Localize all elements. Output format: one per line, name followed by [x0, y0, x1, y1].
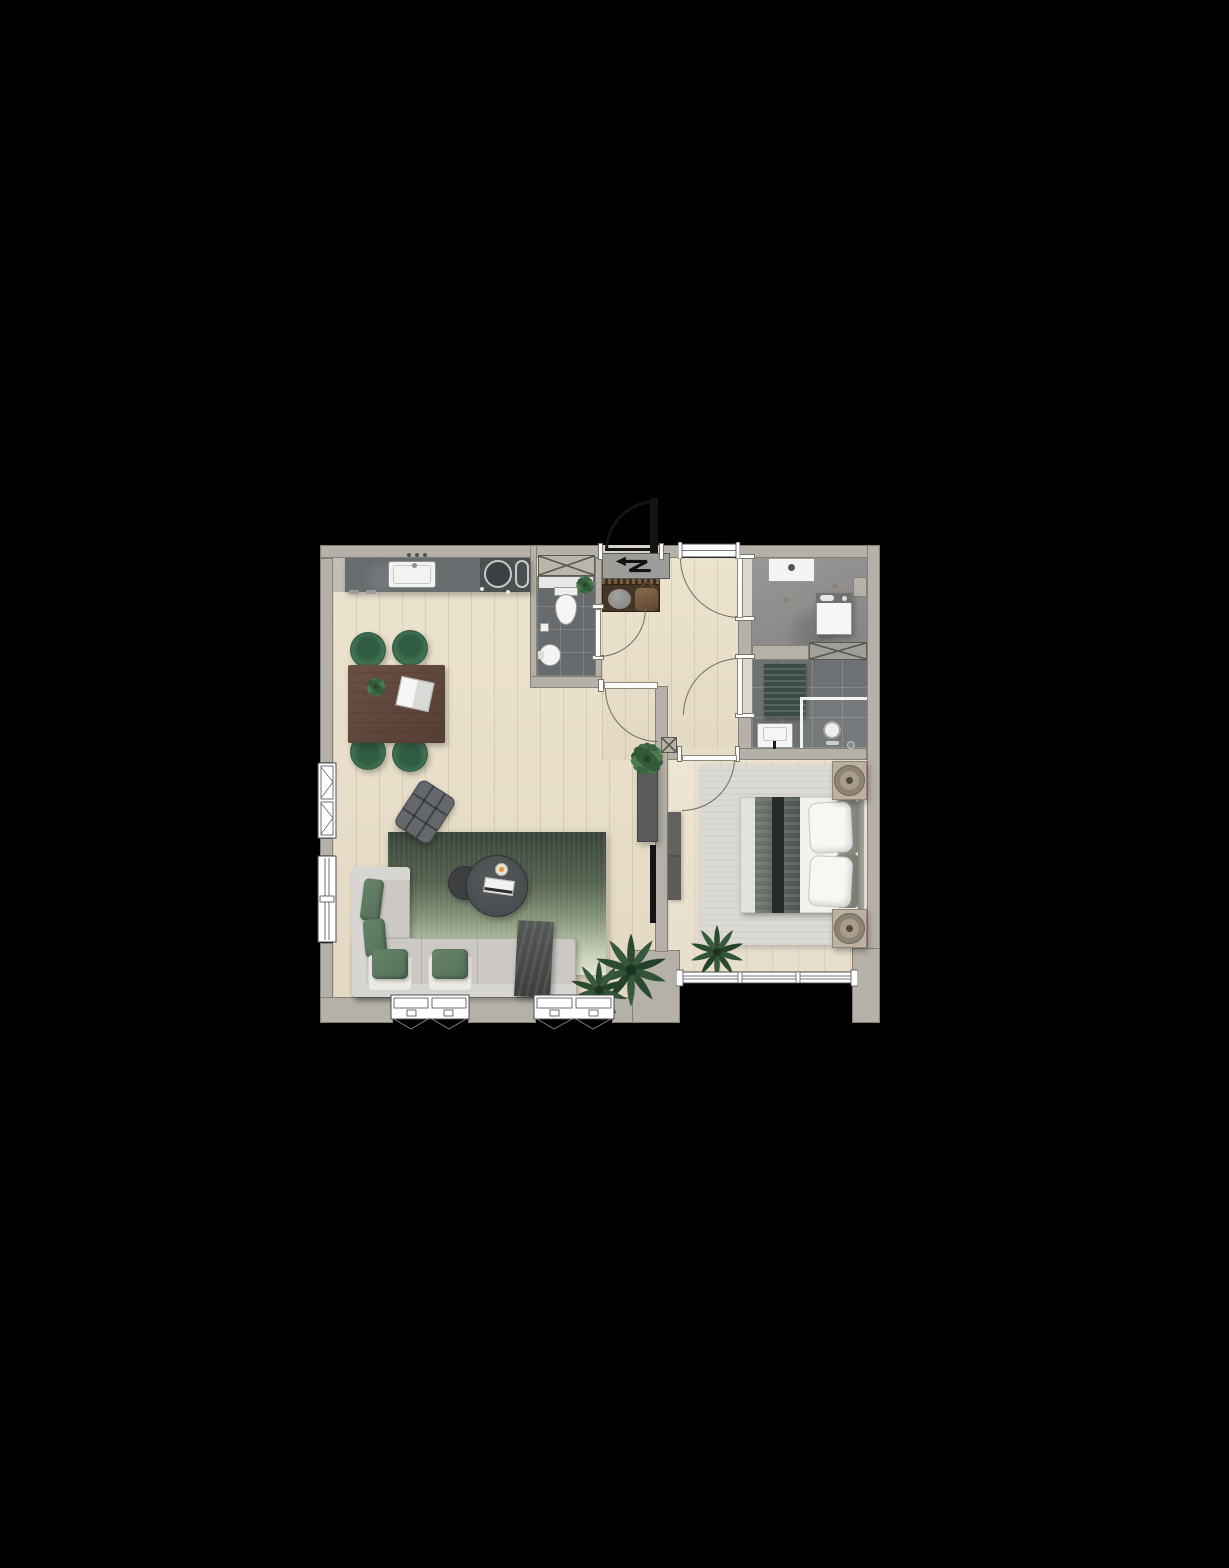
bedroom-dresser	[668, 812, 681, 900]
window-bottom-left	[390, 994, 470, 1030]
faucet-dot-3	[423, 553, 427, 557]
counter-handle-1	[349, 590, 359, 594]
green-pillow-seat-1	[372, 949, 408, 979]
shower-taps	[826, 741, 839, 745]
bathroom-sink-basin	[763, 727, 787, 741]
entrance-door-leaf	[650, 498, 658, 553]
faucet-dot-1	[407, 553, 411, 557]
wall-utility-notch	[853, 577, 867, 597]
window-bottom-right	[533, 994, 615, 1030]
window-hall-top	[678, 542, 740, 559]
entrance-door-swing-arc	[605, 500, 656, 551]
dining-chair-1	[350, 632, 386, 668]
toilet-door-leaf	[595, 609, 601, 657]
bed-pillow-1	[808, 801, 854, 854]
toilet-plant	[572, 572, 598, 598]
wall-utility-bathroom	[752, 645, 809, 660]
wall-bottom-a	[320, 997, 393, 1023]
table-lamp-top-center	[846, 777, 853, 784]
kitchen-sink-basin	[393, 565, 431, 584]
window-bedroom-south	[676, 969, 858, 987]
wall-hall-utility-a	[738, 618, 752, 658]
faucet-dot-2	[415, 553, 419, 557]
wall-top-right	[738, 545, 880, 558]
entrance-jamb-right	[659, 543, 664, 560]
tv	[650, 845, 656, 923]
wall-right	[867, 545, 880, 985]
toilet-paper-holder	[540, 623, 549, 632]
floor-plan	[320, 545, 880, 1023]
entrance-jamb-left	[598, 543, 603, 560]
toilet-basin-spout	[538, 651, 544, 659]
shaft-utility	[809, 642, 867, 660]
counter-handle-2	[366, 590, 376, 594]
window-left-fixed	[317, 855, 337, 943]
pouf	[608, 589, 631, 609]
canvas: { "scene": { "kind": "architectural floo…	[0, 0, 1229, 1568]
utility-sink-drain	[788, 564, 795, 571]
shower-head-icon	[823, 721, 841, 739]
counter-dot-2	[506, 590, 510, 594]
wall-left-upper	[320, 558, 333, 763]
hand-bag	[635, 588, 658, 611]
green-pillow-seat-2	[432, 949, 468, 979]
shower-drain	[847, 741, 855, 749]
tv-cabinet-plant	[623, 735, 671, 783]
counter-dot-1	[480, 587, 484, 591]
dining-chair-2	[392, 630, 428, 666]
hob-icon	[484, 560, 512, 588]
bed-pillow-2	[808, 855, 854, 908]
bed-duvet-fold	[740, 797, 756, 913]
living-hall-door-leaf	[604, 682, 658, 689]
dining-table-plant	[362, 673, 390, 701]
sofa-throw-blanket	[514, 920, 554, 998]
faucet-spout	[412, 563, 417, 568]
utility-door-leaf	[737, 558, 743, 618]
wall-toilet-left	[530, 545, 537, 688]
washing-machine-drawer	[820, 595, 834, 601]
hob-capsule-icon	[515, 560, 529, 588]
candle-flame	[499, 867, 504, 872]
bathroom-door-leaf	[737, 658, 743, 715]
wall-toilet-bottom	[530, 676, 602, 688]
bed-throw-core	[772, 797, 784, 913]
table-lamp-bottom-center	[846, 925, 853, 932]
sofa-armrest-top	[352, 867, 410, 880]
washing-machine-knob	[842, 596, 847, 601]
wall-bottom-b	[468, 997, 536, 1023]
bedroom-door-leaf	[682, 755, 737, 761]
living-hall-door-jamb	[598, 679, 604, 692]
kitchen-counter-end-panel	[333, 558, 345, 592]
wall-bedroom-top-b	[737, 748, 867, 760]
wall-left-mid	[320, 838, 333, 856]
window-left-casement	[317, 762, 337, 839]
bathroom-faucet	[773, 741, 776, 749]
